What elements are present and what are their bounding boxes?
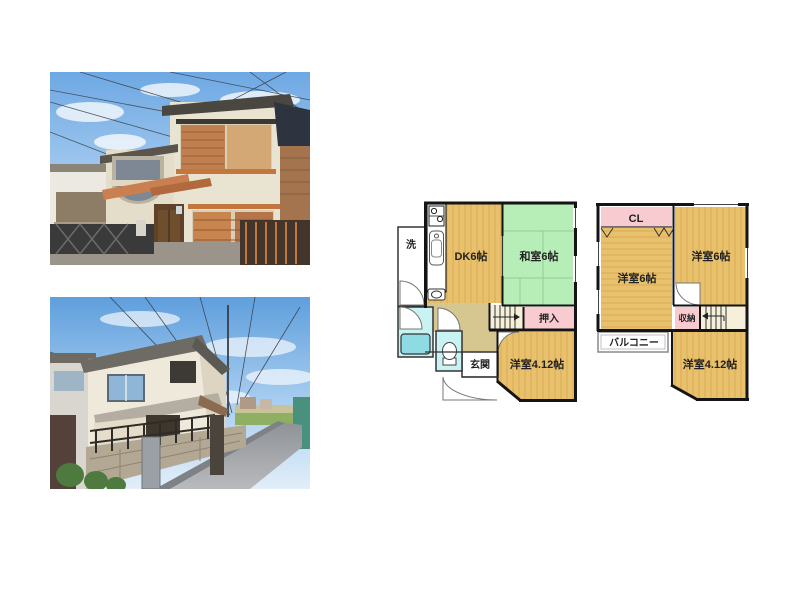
toilet-icon bbox=[443, 343, 457, 366]
label-cl: CL bbox=[629, 213, 644, 225]
label-washitsu: 和室6帖 bbox=[519, 249, 558, 263]
floor-plan: 洗 DK6帖 和室6帖 押入 玄関 洋室4.12帖 bbox=[392, 196, 760, 408]
kitchen-unit bbox=[427, 204, 446, 292]
floor1-hall2 bbox=[458, 331, 498, 352]
label-genkan: 玄関 bbox=[470, 358, 490, 371]
floor1: 洗 DK6帖 和室6帖 押入 玄関 洋室4.12帖 bbox=[398, 202, 578, 402]
label-yoshitsu412-f2: 洋室4.12帖 bbox=[683, 357, 737, 371]
utility-box bbox=[142, 437, 160, 489]
label-oshiire: 押入 bbox=[539, 312, 559, 325]
entrance-door-arc bbox=[443, 377, 497, 400]
label-yoshitsu412-f1: 洋室4.12帖 bbox=[510, 357, 564, 371]
real-estate-listing-image: 洗 DK6帖 和室6帖 押入 玄関 洋室4.12帖 bbox=[0, 0, 800, 600]
photo-exterior-front bbox=[50, 72, 310, 265]
bathtub bbox=[401, 334, 430, 354]
label-balcony: バルコニー bbox=[609, 337, 659, 349]
floor2: CL 洋室6帖 洋室6帖 収納 バルコニー 洋室4.12帖 bbox=[596, 202, 750, 401]
water-heater-icon bbox=[428, 289, 445, 300]
label-laundry: 洗 bbox=[406, 238, 416, 251]
label-yoshitsu6-right: 洋室6帖 bbox=[691, 249, 730, 263]
label-dk: DK6帖 bbox=[454, 249, 487, 263]
label-yoshitsu6-left: 洋室6帖 bbox=[617, 271, 656, 285]
photo-exterior-street bbox=[50, 297, 310, 489]
label-shuno: 収納 bbox=[678, 313, 695, 323]
